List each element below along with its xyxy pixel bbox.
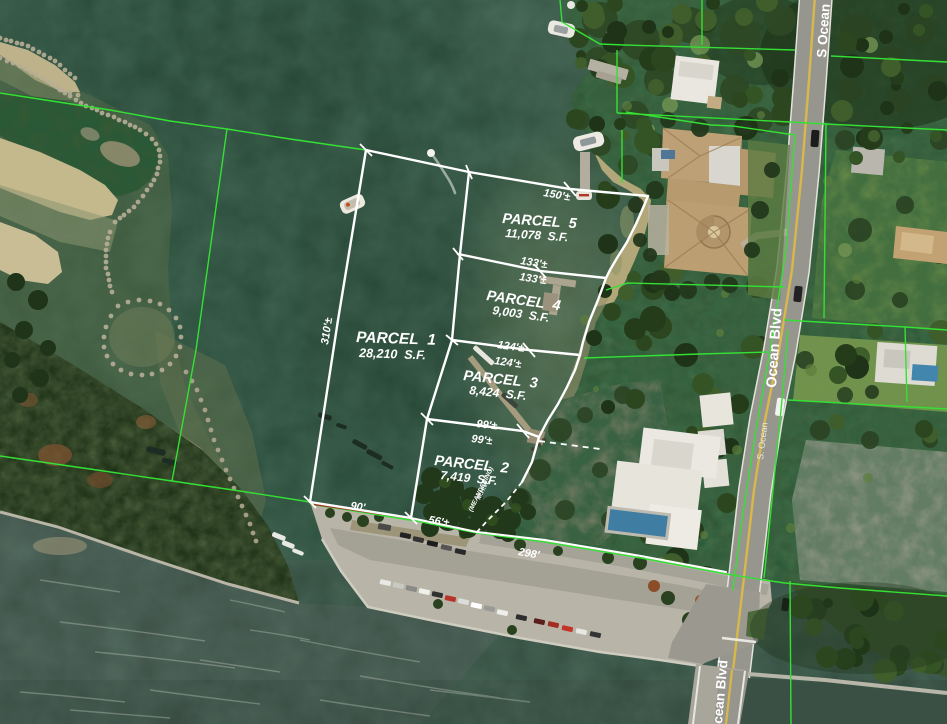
svg-text:90': 90' (350, 500, 367, 514)
svg-text:99'±: 99'± (471, 433, 493, 447)
svg-text:28,210 S.F.: 28,210 S.F. (358, 346, 426, 362)
svg-text:99'±: 99'± (476, 418, 498, 432)
